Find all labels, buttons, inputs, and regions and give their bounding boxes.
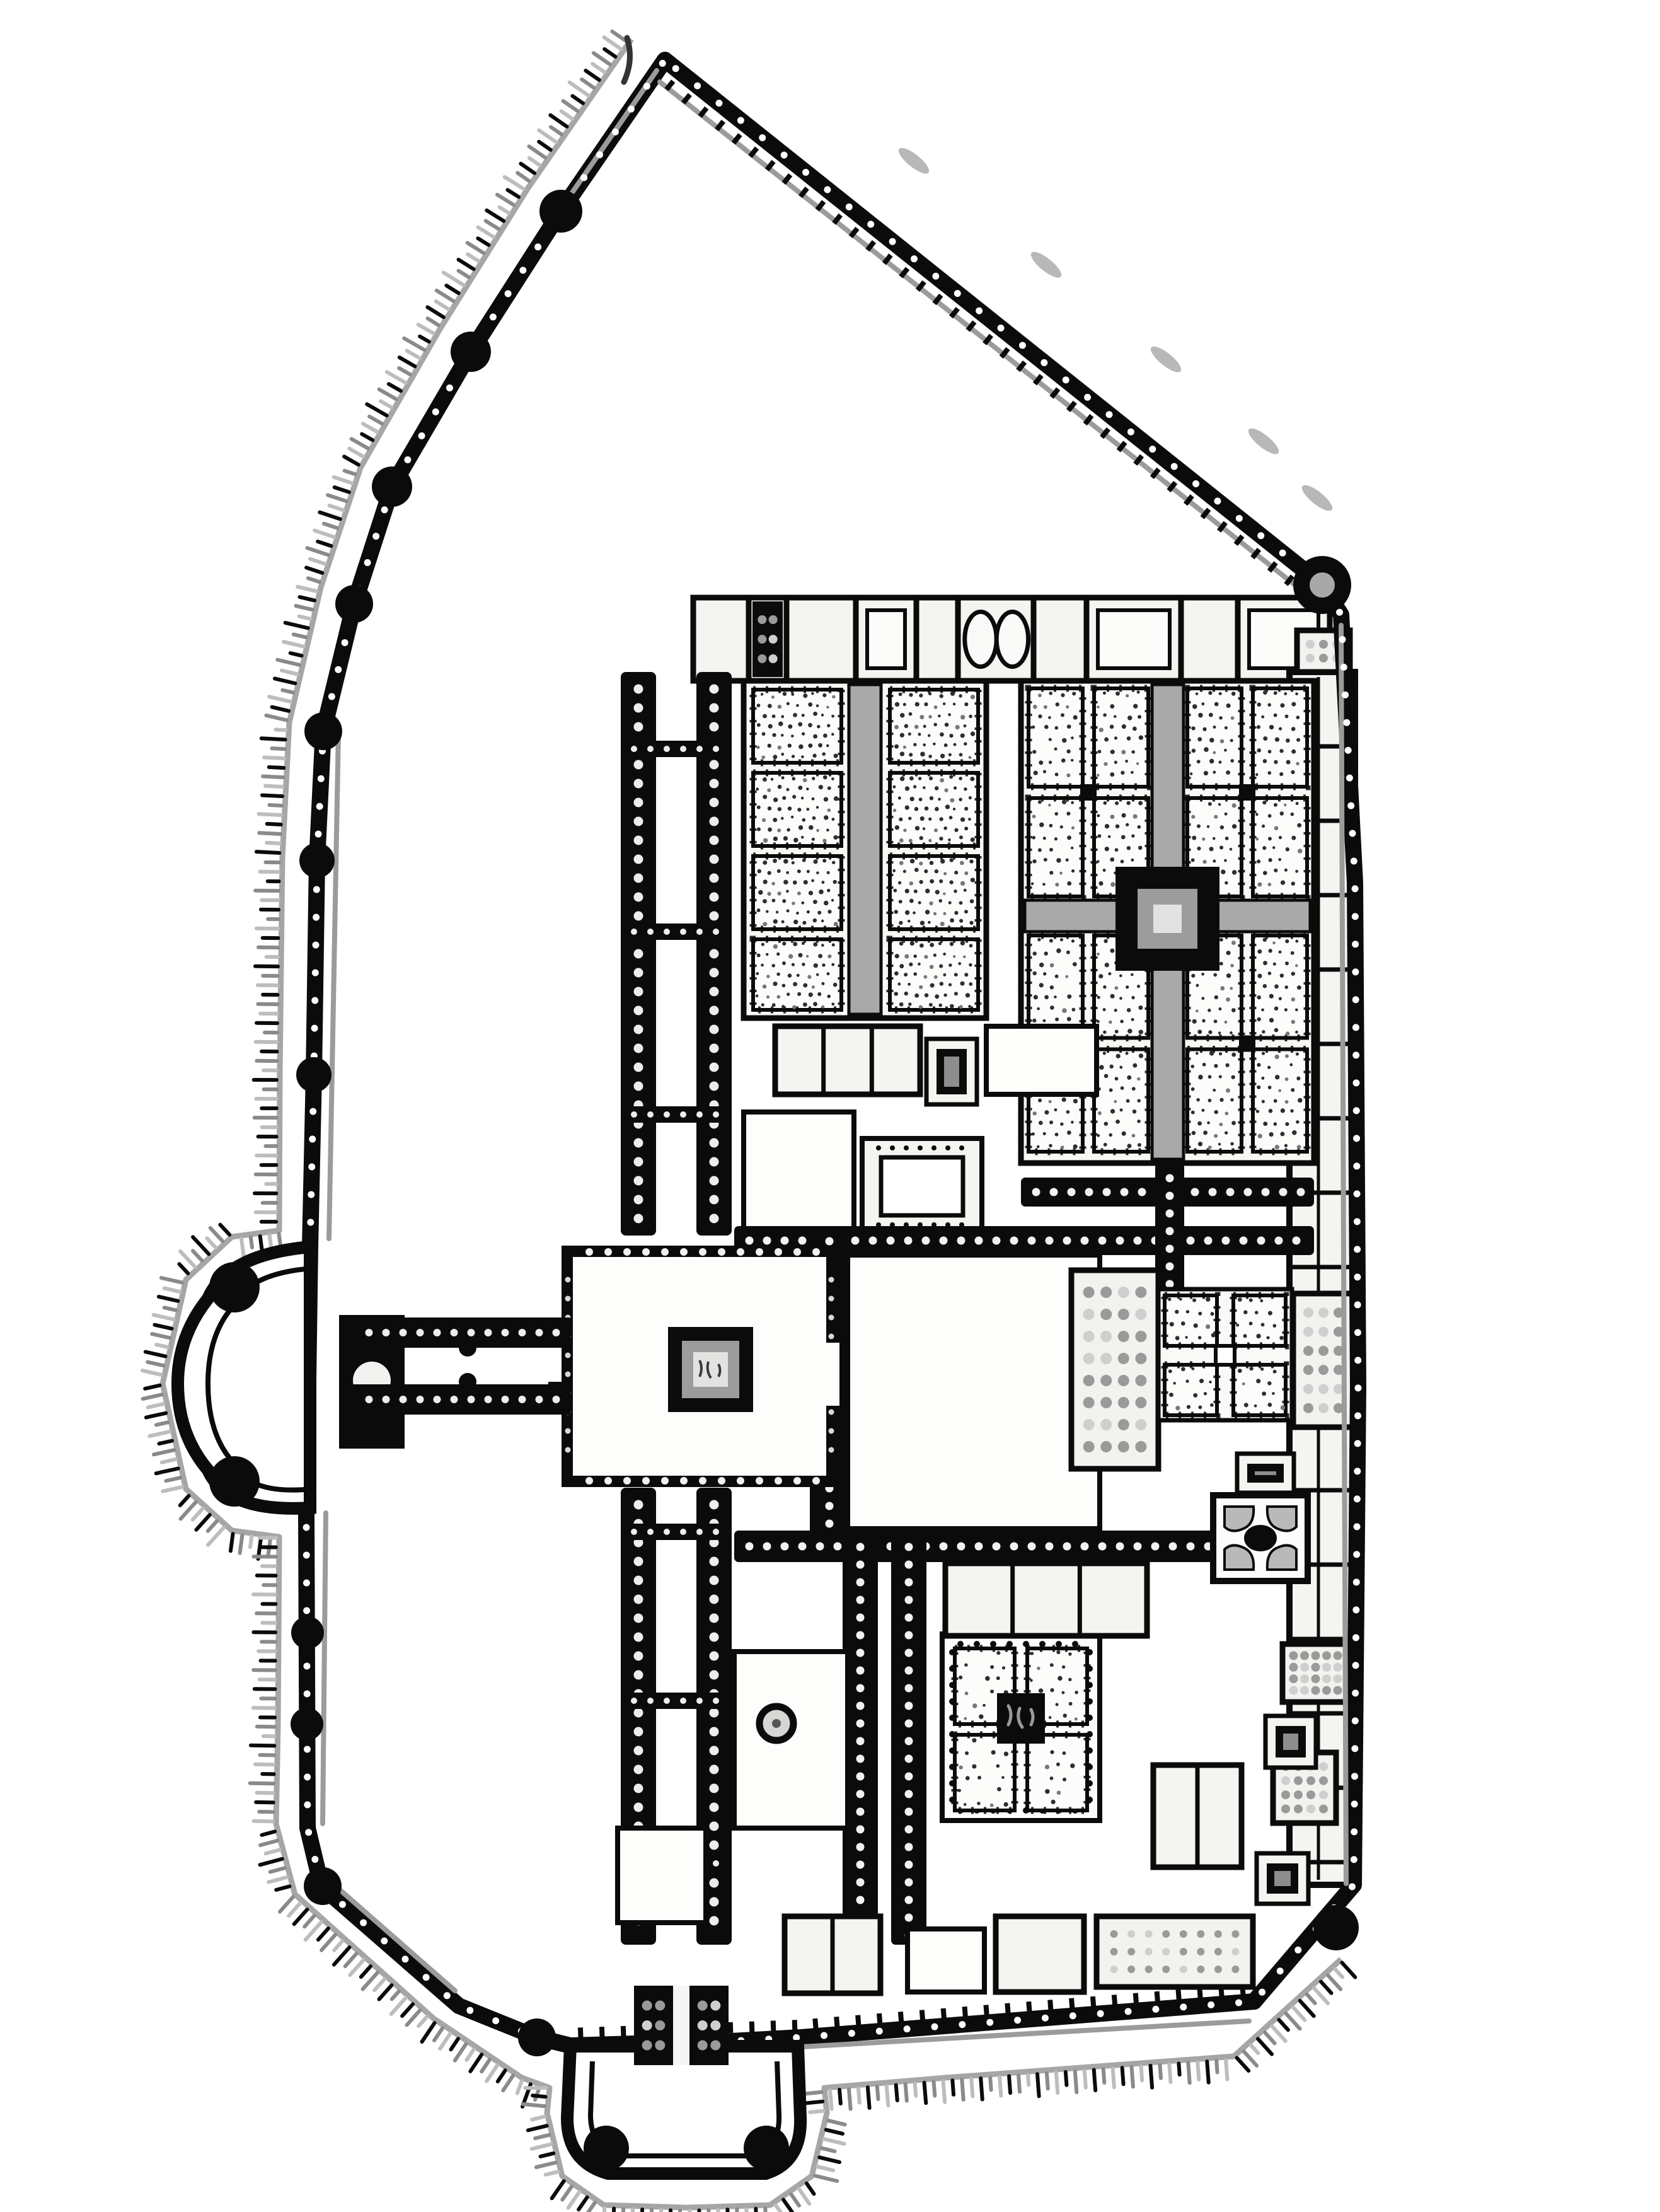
- plan-figure: [0, 0, 1660, 2212]
- fort-plan-drawing: [0, 0, 1660, 2212]
- bastion: [372, 466, 412, 507]
- pillared-hall-west: [1071, 1270, 1158, 1469]
- corner-tower: [1293, 556, 1351, 614]
- wall-shadow-blob: [895, 144, 932, 177]
- court-a: [986, 1026, 1097, 1094]
- bastion: [291, 1616, 324, 1649]
- court-range-b: [945, 1563, 1147, 1636]
- bastion: [304, 1867, 342, 1905]
- rooms-south-b: [996, 1916, 1084, 1992]
- wall-inner-line: [557, 71, 657, 214]
- court-b: [744, 1112, 854, 1232]
- pond-court: [1213, 1495, 1308, 1581]
- bastion: [451, 332, 491, 372]
- bastion: [299, 843, 335, 878]
- court-d: [618, 1828, 706, 1923]
- west-barbican-gate: [178, 1247, 570, 1508]
- charbagh-lower: [942, 1634, 1100, 1821]
- well-court: [734, 1652, 848, 1828]
- wall-inner-line: [323, 1513, 326, 1824]
- charbagh-northwest: [744, 681, 986, 1018]
- wall-shadow-blob: [1147, 342, 1184, 376]
- pavilion-d: [1257, 1853, 1308, 1904]
- bastion: [539, 190, 582, 233]
- wall-shadow-blob: [1245, 424, 1282, 458]
- bastion: [518, 2018, 556, 2056]
- bastion: [296, 1057, 331, 1092]
- court-c: [908, 1929, 984, 1992]
- bastion: [304, 712, 342, 750]
- pillared-store: [1282, 1644, 1349, 1702]
- cloister-court: [862, 1138, 982, 1234]
- interior-structures: [548, 598, 1355, 1993]
- axis-colonnade-south: [734, 1531, 1251, 1562]
- central-courtyard: [548, 1248, 839, 1485]
- pavilion-b: [1237, 1454, 1294, 1493]
- bastion: [291, 1708, 323, 1740]
- rooms-se: [1153, 1765, 1242, 1867]
- bastion: [1313, 1905, 1359, 1950]
- page: { "meta": { "subject": "engraved site pl…: [0, 0, 1660, 2212]
- mid-corridor-lower-2: [891, 1532, 926, 1945]
- pillared-block-south: [1097, 1916, 1253, 1987]
- wall-inner-line: [329, 733, 338, 1239]
- wall-shadow-blob: [1298, 481, 1335, 514]
- pavilion-a: [926, 1039, 977, 1104]
- wall-inner-line: [338, 1888, 455, 1991]
- wall-shadow-blob: [1027, 248, 1064, 281]
- charbagh-southeast: [1158, 1289, 1292, 1420]
- court-range-a: [775, 1026, 920, 1094]
- rooms-south-a: [785, 1916, 880, 1993]
- pavilion-c: [1265, 1716, 1316, 1768]
- audience-courtyard: [848, 1255, 1100, 1529]
- bastion: [335, 585, 373, 623]
- south-barbican-gate: [567, 1986, 800, 2174]
- north-range-rooms: [693, 598, 1330, 681]
